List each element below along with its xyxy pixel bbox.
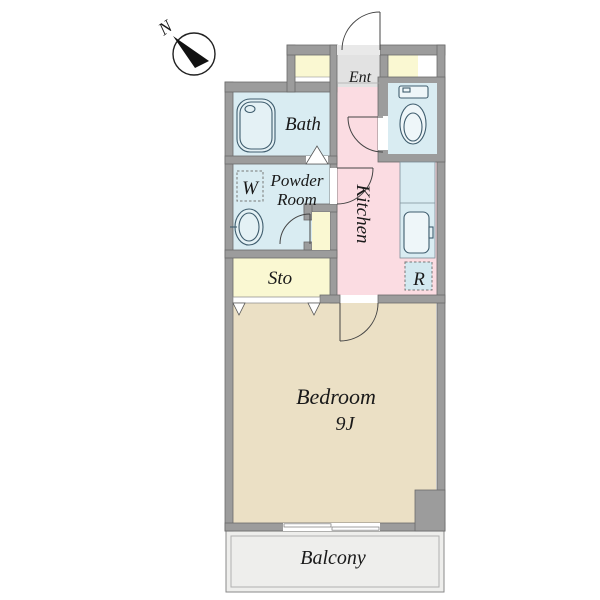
north-label: N (154, 15, 177, 39)
opening-powder-door (330, 168, 337, 204)
floor-powder-closet (312, 212, 330, 250)
opening-toilet-door (378, 116, 388, 150)
powder-room-label-line2: Room (276, 190, 317, 209)
wall-bedroom-notch (415, 490, 445, 531)
door-swing-entrance (342, 12, 380, 50)
toilet-icon (399, 86, 428, 144)
powder-room-label-line1: Powder (270, 171, 324, 190)
entrance-label: Ent (348, 69, 372, 86)
washing-machine-label: W (242, 178, 260, 199)
opening-entrance (337, 45, 380, 55)
window-pane-left (284, 524, 331, 527)
wall-left (225, 82, 233, 531)
opening-storage-doors (233, 297, 320, 303)
bedroom-size-label: 9J (336, 413, 356, 435)
wall-powder-bottom (225, 250, 337, 258)
balcony-label: Balcony (300, 547, 366, 569)
bath-label: Bath (285, 114, 321, 135)
bedroom-label: Bedroom (296, 384, 376, 409)
bathtub-icon (237, 99, 275, 152)
floor-plan-page: N Ent Bath Powder Room W Sto Kitchen R B… (0, 0, 600, 600)
floorplan-canvas: N Ent Bath Powder Room W Sto Kitchen R B… (0, 0, 600, 600)
wall-alcove-stub-bottom (304, 242, 312, 250)
compass-icon: N (154, 15, 215, 75)
wall-top-a (287, 45, 337, 55)
floor-bedroom (233, 303, 436, 523)
window-pane-right (332, 527, 379, 530)
wall-kitchen-bottom-b (378, 295, 445, 303)
kitchen-label: Kitchen (352, 183, 373, 243)
wall-kitchen-bottom-a (320, 295, 340, 303)
refrigerator-label: R (412, 269, 425, 290)
floor-entry-closet-right (387, 55, 418, 80)
wall-top-b (380, 45, 445, 55)
wall-bath-top (225, 82, 337, 92)
storage-label: Sto (268, 268, 292, 289)
